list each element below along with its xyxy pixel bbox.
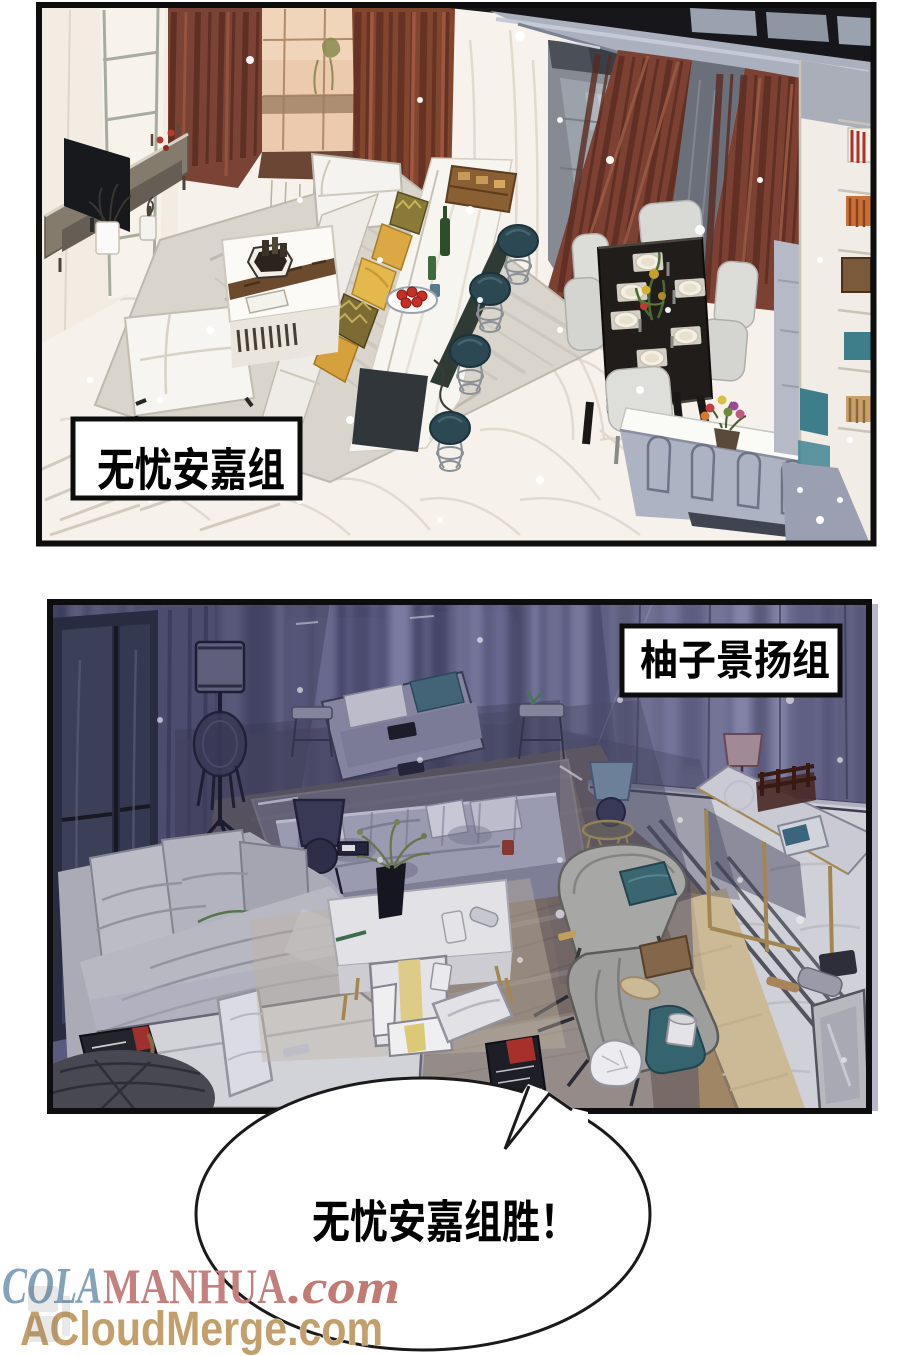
svg-text:ACloudMerge.com: ACloudMerge.com: [20, 1303, 383, 1356]
